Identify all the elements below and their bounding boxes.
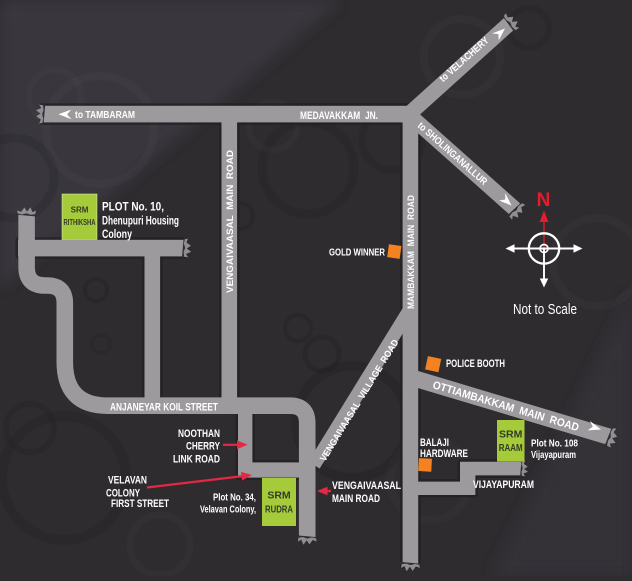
svg-text:MAMBAKKAM MAIN ROAD: MAMBAKKAM MAIN ROAD [406, 195, 417, 309]
svg-text:ANJANEYAR KOIL STREET: ANJANEYAR KOIL STREET [110, 401, 218, 413]
svg-text:MEDAVAKKAM JN.: MEDAVAKKAM JN. [300, 110, 378, 122]
svg-text:N: N [537, 190, 551, 211]
svg-text:VENGAIVAASAL MAIN ROAD: VENGAIVAASAL MAIN ROAD [225, 150, 236, 293]
svg-text:HARDWARE: HARDWARE [420, 448, 468, 460]
svg-text:Vijayapuram: Vijayapuram [531, 449, 576, 461]
svg-text:RUDRA: RUDRA [265, 504, 293, 516]
svg-text:RAAM: RAAM [499, 442, 523, 454]
svg-text:SRM: SRM [499, 429, 523, 441]
svg-text:FIRST STREET: FIRST STREET [111, 498, 169, 510]
svg-text:VENGAIVAASAL: VENGAIVAASAL [332, 480, 401, 492]
svg-text:BALAJI: BALAJI [420, 437, 449, 449]
svg-text:CHERRY: CHERRY [186, 441, 220, 453]
svg-text:Plot No. 108: Plot No. 108 [531, 438, 578, 450]
svg-text:Colony: Colony [102, 229, 132, 241]
svg-text:POLICE BOOTH: POLICE BOOTH [446, 358, 505, 370]
svg-text:PLOT No. 10,: PLOT No. 10, [102, 202, 164, 214]
svg-text:SRM: SRM [267, 490, 291, 502]
svg-text:RITHIKSHA: RITHIKSHA [64, 218, 96, 227]
svg-text:Plot No. 34,: Plot No. 34, [213, 492, 256, 504]
svg-text:NOOTHAN: NOOTHAN [178, 428, 220, 440]
svg-text:GOLD WINNER: GOLD WINNER [329, 247, 385, 259]
svg-text:to TAMBARAM: to TAMBARAM [75, 110, 135, 121]
svg-text:VELAVAN: VELAVAN [108, 475, 147, 487]
svg-text:VIJAYAPURAM: VIJAYAPURAM [473, 479, 534, 491]
svg-text:MAIN ROAD: MAIN ROAD [332, 493, 380, 505]
svg-text:LINK ROAD: LINK ROAD [173, 454, 220, 466]
svg-text:Not to Scale: Not to Scale [513, 302, 577, 318]
svg-text:Dhenupuri Housing: Dhenupuri Housing [102, 216, 179, 228]
svg-text:Velavan Colony,: Velavan Colony, [200, 504, 256, 516]
svg-text:SRM: SRM [71, 206, 89, 215]
